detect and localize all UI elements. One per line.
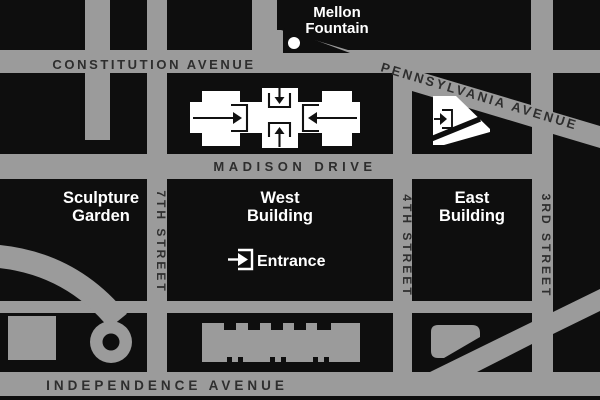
mellon-fountain-dot-icon — [288, 37, 300, 49]
madison-drive-label: MADISON DRIVE — [213, 159, 376, 174]
city-block — [553, 134, 600, 312]
city-block — [0, 73, 85, 154]
west-building-label-line1: West — [260, 189, 300, 207]
city-block — [553, 0, 600, 50]
mellon-fountain-label-line2: Fountain — [305, 20, 368, 37]
fourth-street-label: 4TH STREET — [400, 194, 414, 297]
city-block — [110, 0, 147, 50]
east-building-label-line2: Building — [439, 207, 505, 225]
west-building-label-line2: Building — [247, 207, 313, 225]
square-building-footprint — [8, 316, 56, 360]
constitution-avenue-label: CONSTITUTION AVENUE — [52, 57, 255, 72]
round-building-courtyard — [103, 334, 120, 351]
city-block — [167, 0, 252, 50]
third-street-label: 3RD STREET — [539, 194, 553, 299]
sculpture-garden-label-line1: Sculpture — [63, 189, 139, 207]
nga-visitor-map: CONSTITUTION AVENUE PENNSYLVANIA AVENUE … — [0, 0, 600, 400]
east-building-label-line1: East — [455, 189, 490, 207]
map-edge-strip — [0, 396, 600, 400]
seventh-street-label: 7TH STREET — [154, 190, 168, 293]
sculpture-garden-label-line2: Garden — [72, 207, 130, 225]
mellon-fountain-label-line1: Mellon — [313, 4, 361, 21]
city-block — [85, 140, 110, 154]
city-block — [110, 73, 147, 154]
independence-avenue-label: INDEPENDENCE AVENUE — [46, 378, 288, 393]
entrance-label: Entrance — [257, 253, 326, 270]
city-block — [0, 0, 85, 50]
map-canvas: CONSTITUTION AVENUE PENNSYLVANIA AVENUE … — [0, 0, 600, 400]
